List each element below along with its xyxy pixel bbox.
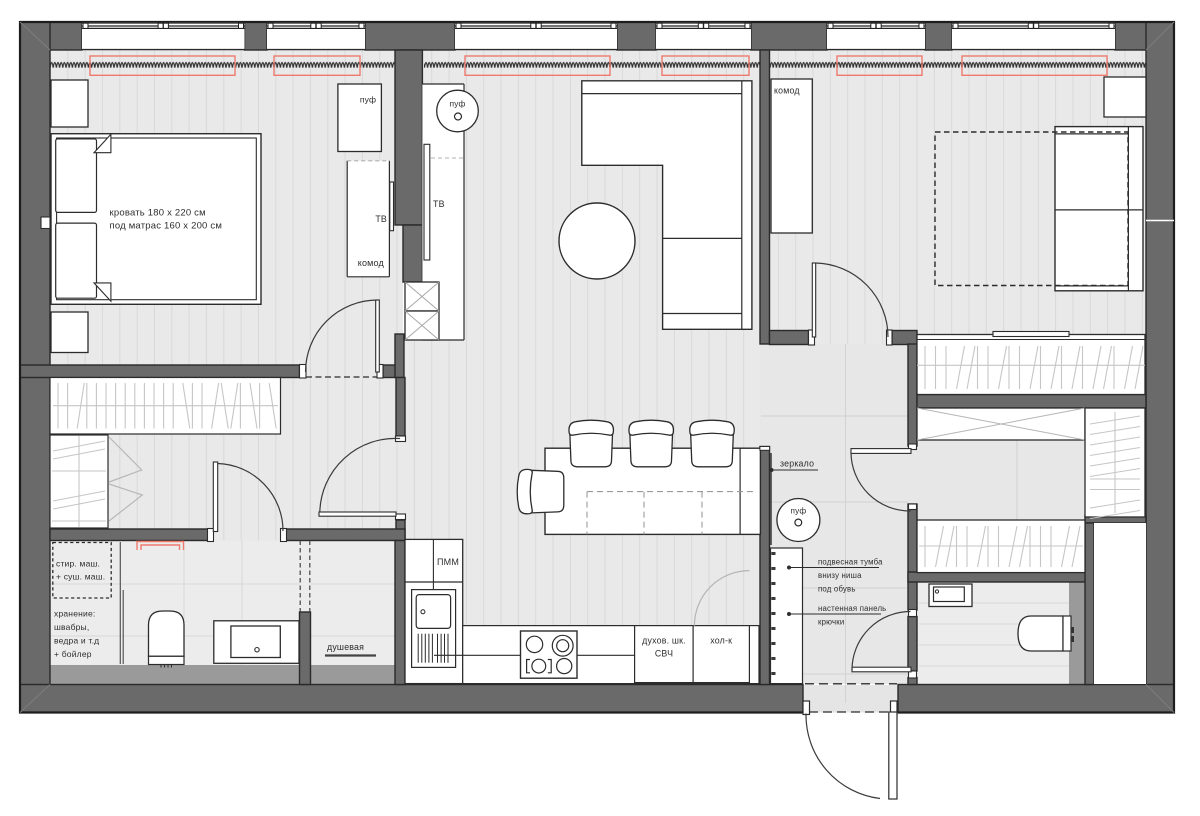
- svg-text:комод: комод: [774, 86, 800, 96]
- svg-text:хранение:: хранение:: [54, 609, 95, 619]
- svg-text:ведра и т.д: ведра и т.д: [54, 636, 99, 646]
- svg-text:крючки: крючки: [818, 618, 844, 627]
- svg-text:+ бойлер: + бойлер: [54, 649, 92, 659]
- svg-text:комод: комод: [358, 258, 385, 268]
- svg-text:СВЧ: СВЧ: [655, 649, 673, 659]
- svg-text:кровать 180 х 220 см: кровать 180 х 220 см: [110, 208, 206, 219]
- svg-text:настенная панель: настенная панель: [818, 604, 886, 613]
- svg-text:пуф: пуф: [360, 95, 376, 105]
- svg-text:хол-к: хол-к: [710, 636, 732, 646]
- svg-text:душевая: душевая: [327, 642, 364, 652]
- svg-text:стир. маш.: стир. маш.: [56, 559, 100, 569]
- svg-text:ТВ: ТВ: [433, 199, 445, 209]
- svg-text:под матрас 160 х 200 см: под матрас 160 х 200 см: [110, 221, 223, 232]
- svg-text:зеркало: зеркало: [780, 459, 814, 469]
- svg-text:под обувь: под обувь: [818, 585, 856, 594]
- svg-text:+ суш. маш.: + суш. маш.: [56, 572, 105, 582]
- svg-text:пуф: пуф: [791, 507, 807, 516]
- svg-text:ТВ: ТВ: [375, 214, 387, 224]
- svg-text:подвесная тумба: подвесная тумба: [818, 558, 883, 567]
- svg-text:внизу ниша: внизу ниша: [818, 571, 862, 580]
- svg-text:ПММ: ПММ: [437, 557, 459, 567]
- svg-text:духов. шк.: духов. шк.: [642, 636, 686, 646]
- svg-text:пуф: пуф: [450, 100, 466, 109]
- svg-text:швабры,: швабры,: [54, 622, 89, 632]
